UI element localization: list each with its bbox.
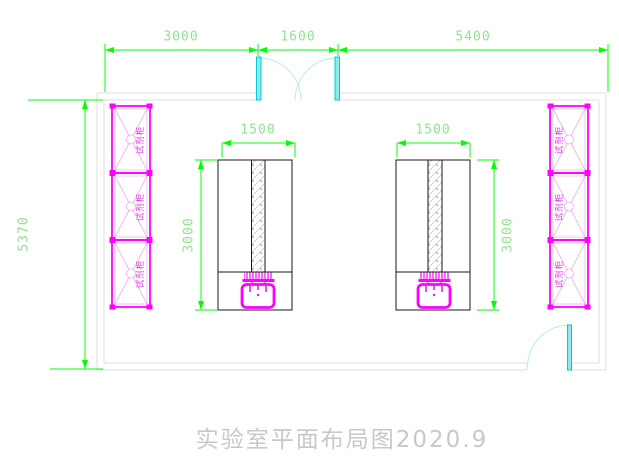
door-swing-arc <box>528 325 570 367</box>
drainboard-comb <box>420 273 449 280</box>
door-leaf <box>568 325 572 370</box>
room-walls <box>97 93 606 370</box>
floor-plan-drawing <box>0 0 619 469</box>
sink-right <box>418 273 451 308</box>
witness-lines-left <box>28 100 103 369</box>
reagent-shelf-hatch <box>252 160 266 272</box>
door-swing-arc <box>295 58 337 100</box>
reagent-cabinets-right <box>548 104 591 310</box>
witness-lines-top <box>105 44 608 92</box>
door-leaf <box>257 57 262 100</box>
reagent-cabinets-left <box>110 104 153 310</box>
cad-floor-plan: 3000 1600 5400 5370 1500 3000 1500 3000 … <box>0 0 619 469</box>
single-side-door <box>528 325 572 370</box>
reagent-shelf-hatch <box>428 160 442 272</box>
door-swing-arc <box>259 58 301 100</box>
door-leaf <box>335 57 340 100</box>
drain-icon <box>257 294 259 296</box>
double-entry-door <box>257 57 340 100</box>
drainboard-comb <box>244 273 273 280</box>
drain-icon <box>433 294 435 296</box>
sink-left <box>242 273 275 308</box>
